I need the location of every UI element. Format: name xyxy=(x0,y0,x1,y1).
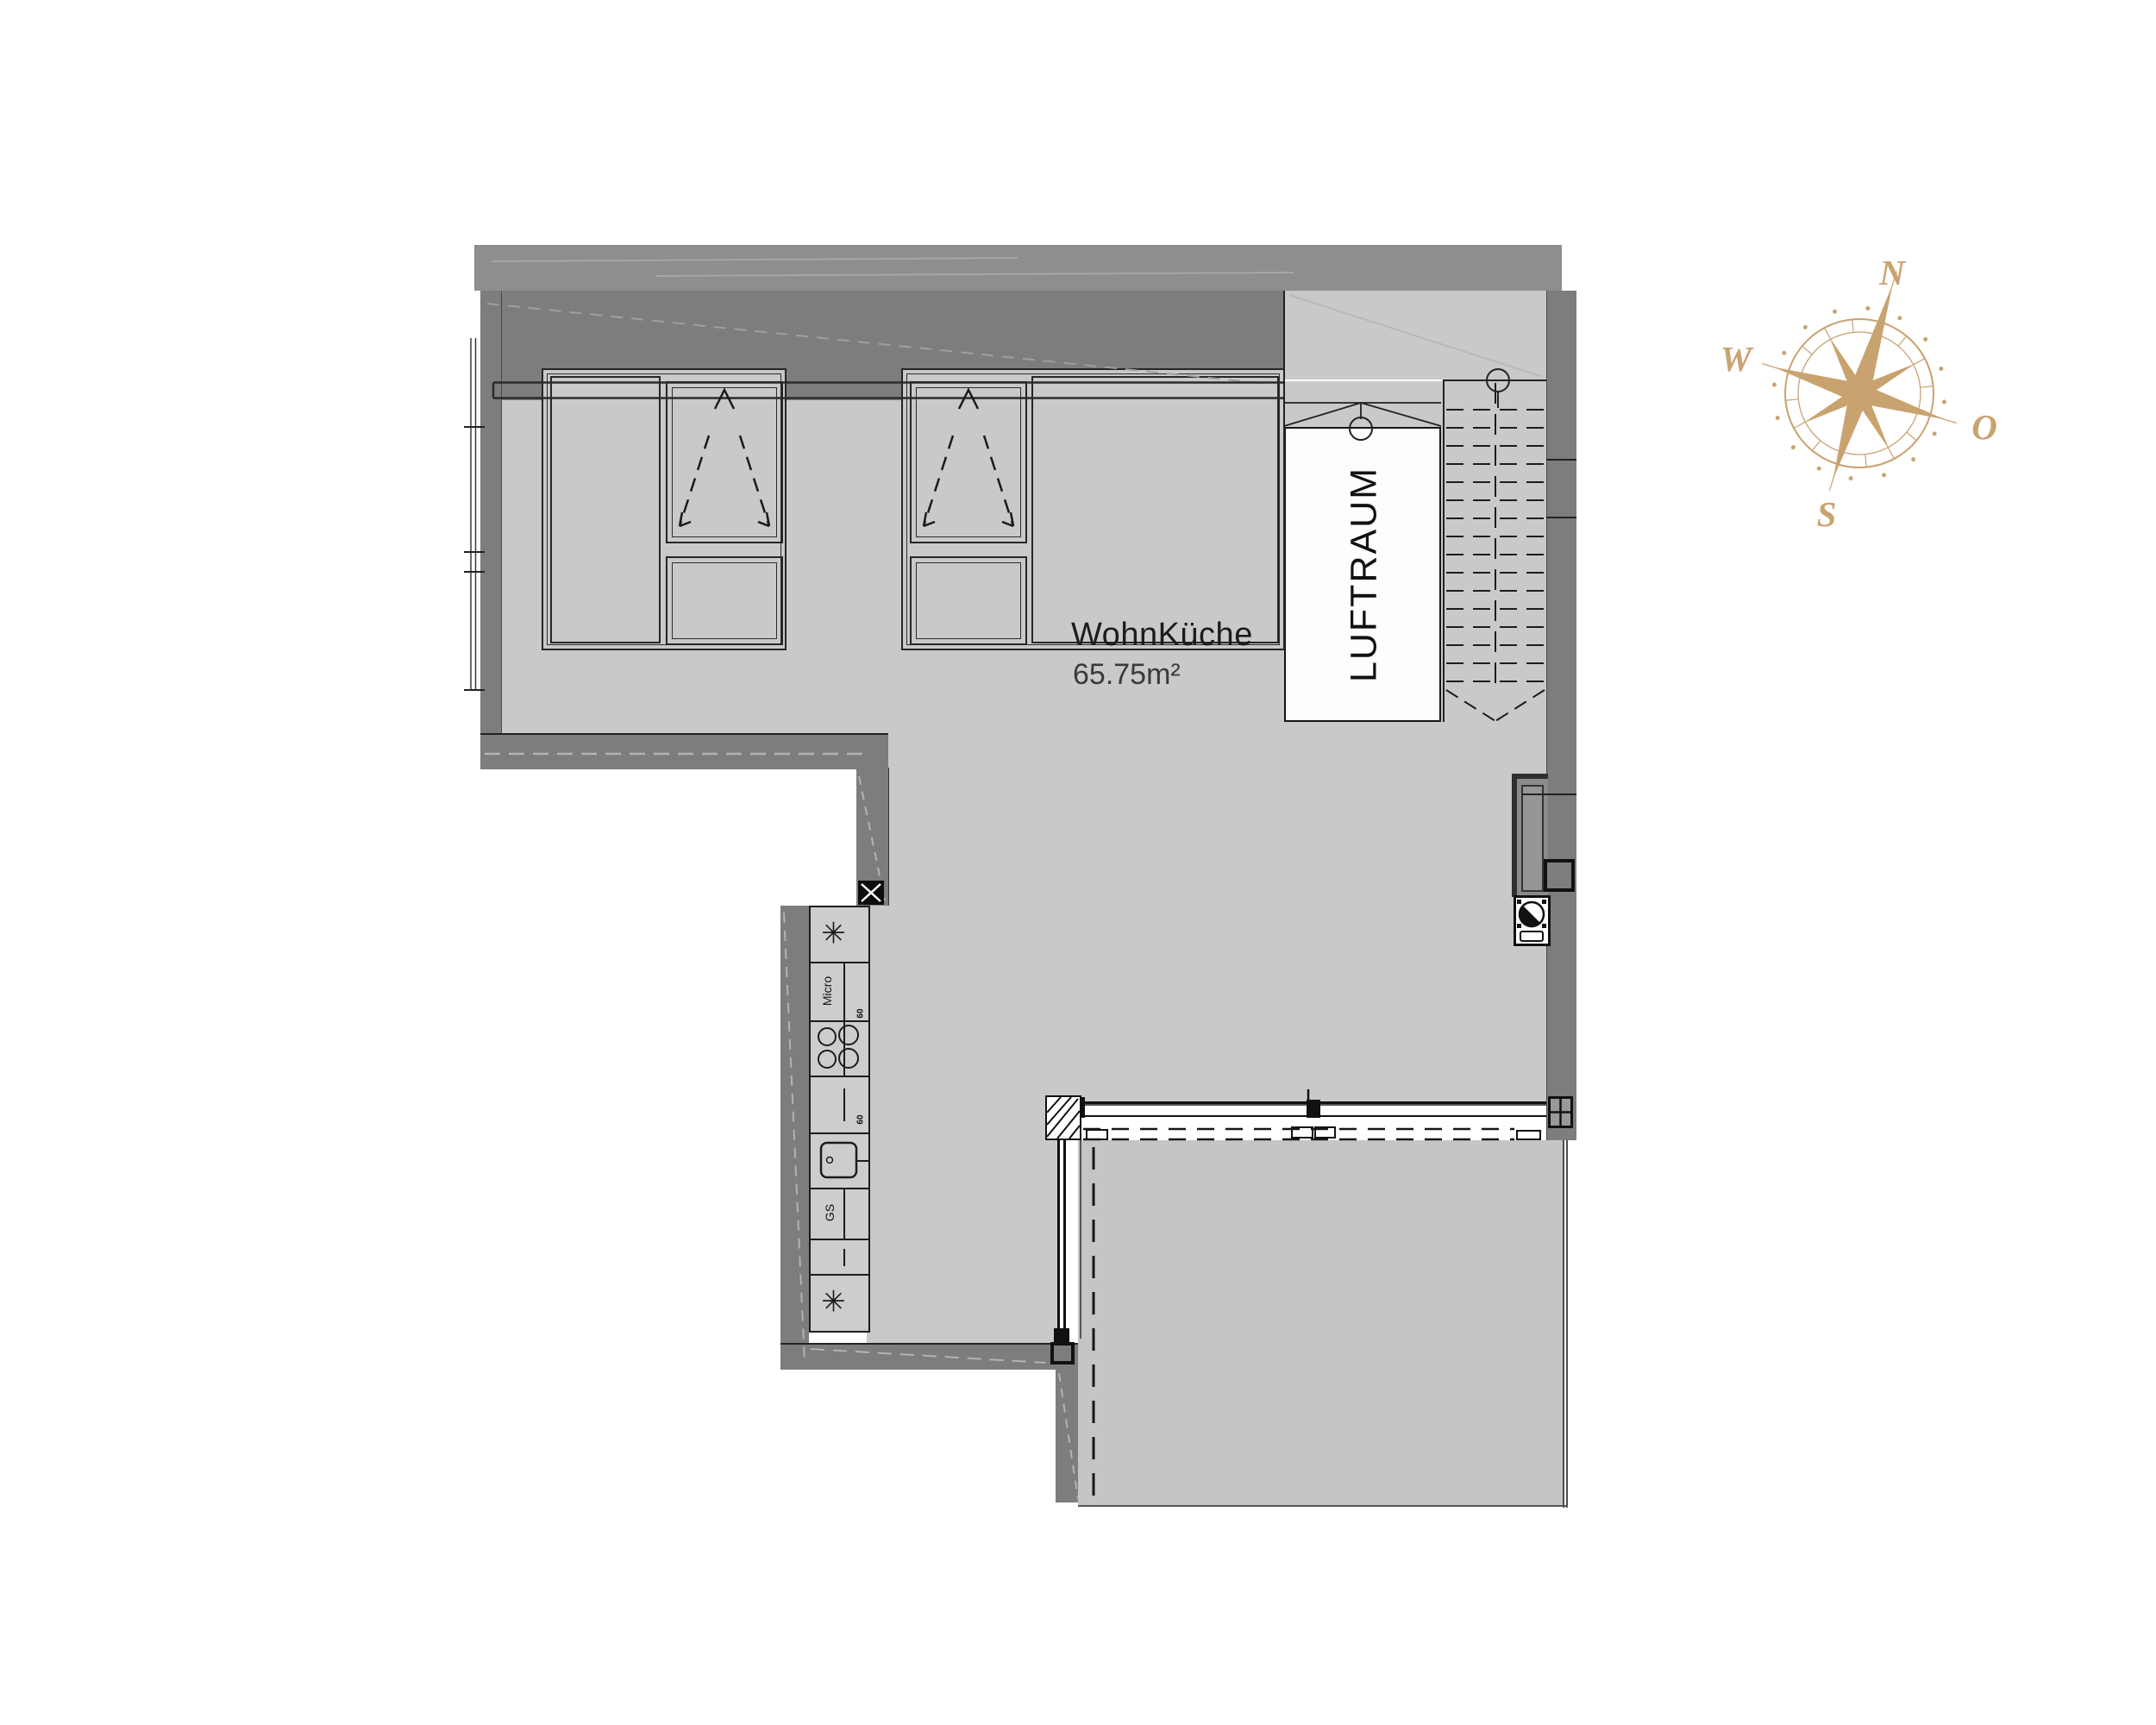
terrace-wall-dash xyxy=(1059,1373,1078,1499)
roof-slope-dash xyxy=(487,304,1259,383)
compass-west-label: W xyxy=(1720,338,1752,379)
roof-window-left-arrow-icon xyxy=(680,390,769,526)
wall-window-cross xyxy=(1548,1096,1573,1128)
compass-rose xyxy=(1733,241,1994,520)
canopy-circle xyxy=(1350,417,1372,440)
top-glazing-lines xyxy=(493,383,1284,398)
compass-east-label: O xyxy=(1971,406,1997,448)
compass-south-label: S xyxy=(1817,493,1837,535)
landing-slope-line xyxy=(1289,295,1540,376)
left-glazing-lines xyxy=(471,338,476,690)
stair-arrow xyxy=(1446,690,1545,721)
plan-linework xyxy=(0,0,2156,1725)
post-hatch-lines xyxy=(1047,1097,1080,1138)
cooktop-burners-icon xyxy=(818,1026,858,1068)
terrace-drip-dashes xyxy=(1083,1129,1514,1139)
bottom-wall-dash xyxy=(811,1349,1045,1363)
canopy-lines xyxy=(1284,403,1441,426)
left-wall-ticks xyxy=(464,427,485,690)
roof-streak-lines xyxy=(492,258,1294,276)
stair-post-circle xyxy=(1487,369,1509,392)
floorplan-canvas: LUFTRAUM ✳ ✳ Micro GS 60 60 WohnKüche 65… xyxy=(0,0,2156,1725)
roof-window-right-arrow-icon xyxy=(924,390,1013,526)
compass-north-label: N xyxy=(1879,252,1905,293)
kitchen-divider-lines xyxy=(844,962,868,1266)
terrace-right-edge xyxy=(1564,1140,1567,1508)
kitchen-wall-dash xyxy=(784,913,805,1363)
